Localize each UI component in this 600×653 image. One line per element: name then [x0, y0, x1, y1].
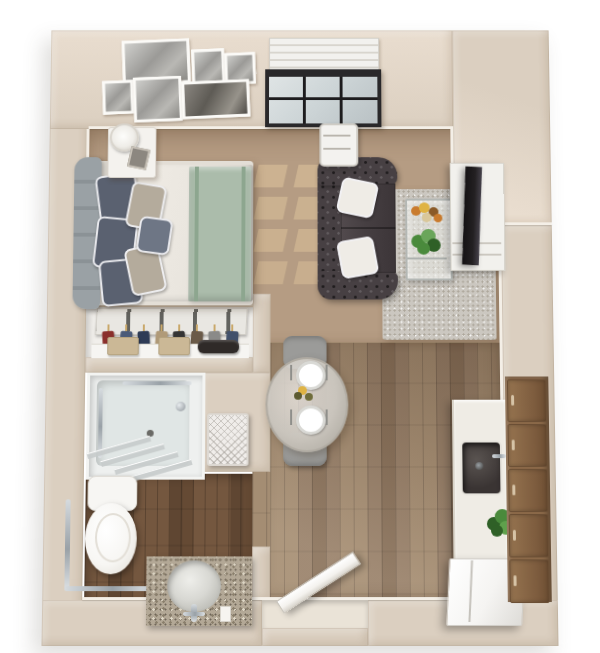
- sofa-seat-seam: [341, 227, 396, 229]
- cutlery: [290, 365, 292, 380]
- cabinet-door: [509, 559, 550, 603]
- cabinet-handle: [512, 485, 515, 496]
- kitchen-cabinets: [505, 376, 552, 602]
- centerpiece-leaf: [294, 392, 302, 400]
- cabinet-door: [509, 514, 549, 557]
- sun-patch: [254, 197, 288, 220]
- kitchen-faucet: [492, 454, 506, 458]
- floor-lamp-detail: [323, 135, 350, 137]
- sun-patch: [254, 229, 288, 252]
- sofa-pillow: [336, 236, 379, 280]
- cutlery: [326, 365, 328, 380]
- window-glass: [269, 77, 378, 124]
- cabinet-door: [507, 379, 547, 422]
- bed-pillow-accent: [135, 216, 173, 256]
- coffee-table-shelf-line: [408, 258, 447, 260]
- flower: [422, 213, 432, 222]
- closet-right-wall: [253, 294, 271, 373]
- plant-leaf: [491, 525, 503, 537]
- wall-fixture: [220, 606, 231, 622]
- flower-arrangement: [409, 202, 444, 227]
- bottom-wall-under-door: [262, 628, 368, 646]
- vanity-faucet-handles: [183, 612, 205, 616]
- bed-throw-stripe: [241, 167, 245, 302]
- plant-leaf: [417, 242, 430, 254]
- table-plant: [411, 229, 442, 258]
- sofa-pillow: [336, 176, 380, 219]
- cabinet-handle: [511, 395, 514, 406]
- centerpiece-leaf: [305, 393, 313, 401]
- sun-patch: [253, 261, 287, 284]
- cabinet-handle: [512, 440, 515, 451]
- framed-photo: [227, 55, 253, 82]
- closet-bag: [198, 340, 239, 353]
- cutlery: [326, 409, 328, 425]
- framed-photo: [184, 82, 247, 116]
- storage-box: [158, 337, 190, 355]
- cabinet-handle: [513, 530, 516, 541]
- cutlery: [290, 409, 292, 425]
- place-setting-plate: [296, 406, 326, 435]
- framed-photo: [105, 83, 131, 112]
- towel-basket: [207, 413, 249, 466]
- shower-grab-bar-top: [123, 381, 192, 385]
- television: [462, 166, 482, 265]
- kitchen-sink-drain: [475, 462, 483, 470]
- framed-photo: [194, 51, 222, 84]
- shower-glass-screen: [86, 441, 195, 476]
- wood-floor-doorway: [252, 472, 270, 547]
- bathroom-divider-wall: [252, 547, 270, 601]
- cabinet-handle: [513, 575, 516, 586]
- table-centerpiece: [294, 384, 316, 403]
- toilet-grab-bar-horizontal: [64, 586, 152, 591]
- picture-frame: [181, 79, 250, 119]
- floor-lamp-detail: [323, 148, 350, 150]
- floor-lamp: [319, 123, 358, 166]
- sun-patch: [254, 165, 288, 188]
- cabinet-door: [508, 469, 548, 512]
- storage-box: [107, 337, 139, 355]
- apartment-scene: [0, 25, 600, 653]
- flower: [434, 214, 443, 223]
- shower-head: [176, 402, 186, 412]
- floor-plan-canvas: [0, 0, 600, 653]
- picture-frame: [133, 76, 183, 123]
- framed-photo: [136, 79, 180, 120]
- picture-frame: [102, 80, 134, 115]
- bathroom-top-wall: [85, 357, 252, 372]
- cabinet-door: [508, 424, 548, 467]
